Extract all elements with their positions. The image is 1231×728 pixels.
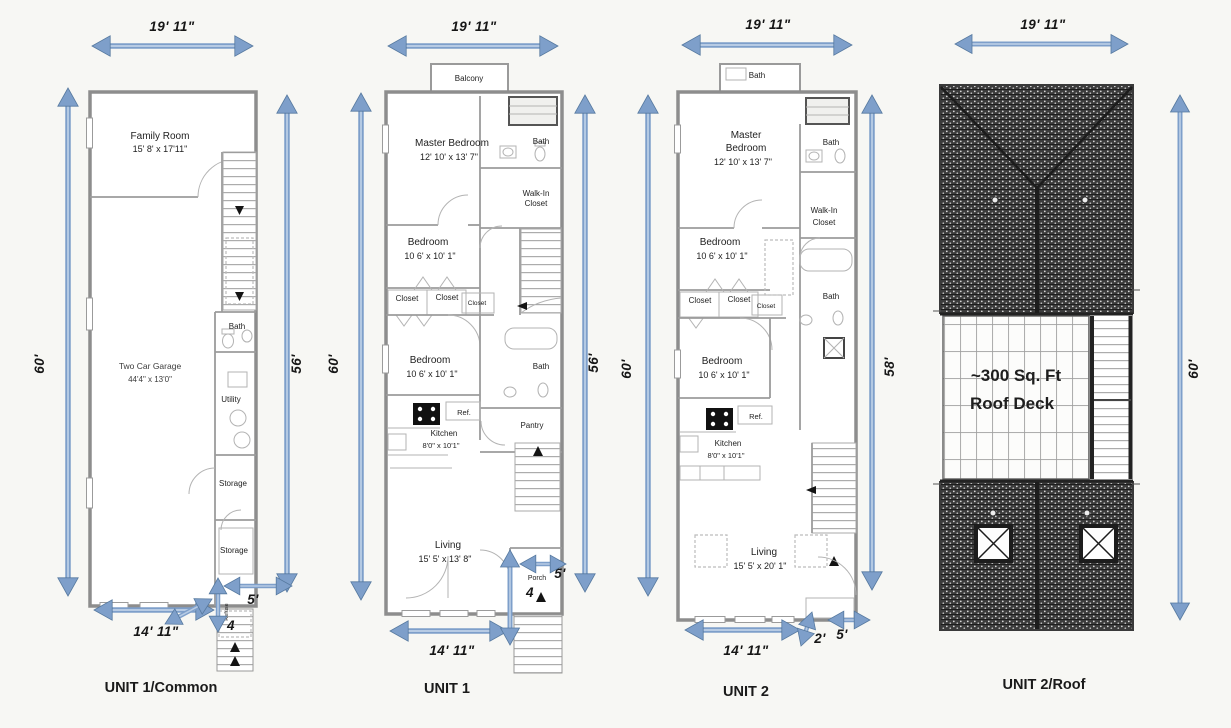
skylight: [1081, 526, 1116, 561]
room-label-bedroom2: Bedroom: [702, 356, 743, 367]
dimension-arrow: [682, 35, 852, 55]
room-label-kitchen: Kitchen: [715, 439, 742, 448]
room-label-bath-mid: Bath: [823, 292, 839, 301]
room-label-ref: Ref.: [749, 412, 763, 421]
dim-bottom-unit1common: 14' 11": [133, 624, 178, 639]
dimension-arrow: [388, 36, 558, 56]
room-label-bath: Bath: [229, 322, 245, 331]
plan-title-unit1: UNIT 1: [424, 681, 470, 697]
room-label-walkin1: Walk-In: [811, 206, 838, 215]
dim-sidewidth-unit2: 5': [836, 627, 848, 642]
floorplan-canvas: Family Room 15' 8' x 17'11" Two Car Gara…: [0, 0, 1231, 728]
room-label-walkin2: Closet: [813, 218, 836, 227]
dim-top-roof: 19' 11": [1020, 17, 1065, 32]
room-label-closet1: Closet: [689, 296, 712, 305]
dimension-arrow: [277, 95, 297, 592]
roofdeck-label-line1: ~300 Sq. Ft: [971, 366, 1062, 385]
room-label-closet2: Closet: [436, 293, 459, 302]
unit1-floorplan: Balcony Master Bedroom 12' 10' x 13' 7" …: [326, 19, 601, 697]
room-label-balcony: Balcony: [455, 74, 483, 83]
dimension-arrow: [92, 36, 253, 56]
room-label-ref: Ref.: [457, 408, 471, 417]
room-label-walkin2: Closet: [525, 199, 548, 208]
room-label-bath-upper: Bath: [823, 138, 839, 147]
dim-porchdepth-unit1: 4: [525, 585, 534, 600]
room-size-living: 15' 5' x 20' 1": [734, 561, 787, 571]
dimension-arrow: [351, 93, 371, 600]
room-size-kitchen: 8'0" x 10'1": [423, 441, 460, 450]
room-size-bedroom1: 10 6' x 10' 1": [696, 251, 747, 261]
room-label-master1: Master: [731, 130, 762, 141]
room-label-master: Master Bedroom: [415, 138, 489, 149]
roofdeck-label-line2: Roof Deck: [970, 394, 1055, 413]
plan-title-unit1common: UNIT 1/Common: [105, 680, 218, 696]
dimension-arrow: [638, 95, 658, 596]
dim-left-unit2: 60': [619, 359, 634, 379]
room-label-utility: Utility: [221, 395, 241, 404]
room-label-closet1: Closet: [396, 294, 419, 303]
dim-sidedepth-unit2: 2': [813, 631, 826, 646]
plan-title-unit2: UNIT 2: [723, 684, 769, 700]
room-label-closet3: Closet: [757, 303, 776, 310]
room-label-porch: Porch: [528, 575, 546, 582]
room-label-family: Family Room: [131, 131, 190, 142]
room-size-garage: 44'4" x 13'0": [128, 375, 172, 384]
dim-right-unit2: 58': [882, 357, 897, 377]
room-size-living: 15' 5' x 13' 8": [419, 554, 472, 564]
unit2-floorplan: Bath Master Bedroom 12' 10' x 13' 7" Bat…: [619, 17, 897, 700]
room-label-storage1: Storage: [219, 479, 248, 488]
dim-stairwidth-unit1common: 5': [247, 592, 259, 607]
room-label-closet2: Closet: [728, 295, 751, 304]
room-label-bath-mid: Bath: [533, 362, 549, 371]
dim-right-unit1common: 56': [289, 354, 304, 374]
room-label-bath-upper: Bath: [533, 137, 549, 146]
room-label-bedroom1: Bedroom: [408, 237, 449, 248]
skylight: [976, 526, 1011, 561]
dimension-arrow: [390, 621, 508, 641]
dim-left-unit1common: 60': [32, 354, 47, 374]
room-label-garage: Two Car Garage: [119, 361, 182, 371]
dimension-arrow: [58, 88, 78, 596]
room-label-kitchen: Kitchen: [431, 429, 458, 438]
room-label-master2: Bedroom: [726, 143, 767, 154]
dim-bottom-unit1: 14' 11": [429, 643, 474, 658]
dim-bottom-unit2: 14' 11": [723, 643, 768, 658]
plan-title-roof: UNIT 2/Roof: [1003, 677, 1086, 693]
floorplan-sheet: Family Room 15' 8' x 17'11" Two Car Gara…: [0, 0, 1231, 728]
room-size-family: 15' 8' x 17'11": [133, 144, 188, 154]
dim-top-unit1: 19' 11": [451, 19, 496, 34]
dimension-arrow: [575, 95, 595, 592]
room-label-bath-top: Bath: [749, 71, 765, 80]
dim-top-unit2: 19' 11": [745, 17, 790, 32]
room-size-kitchen: 8'0" x 10'1": [708, 451, 745, 460]
dim-stairdepth-unit1common: 4: [226, 618, 235, 633]
unit1-common-floorplan: Family Room 15' 8' x 17'11" Two Car Gara…: [32, 19, 304, 696]
dimension-arrow: [862, 95, 882, 590]
room-size-bedroom1: 10 6' x 10' 1": [404, 251, 455, 261]
room-label-storage2: Storage: [220, 546, 249, 555]
room-label-walkin1: Walk-In: [523, 189, 550, 198]
dimension-arrow: [1171, 95, 1190, 620]
room-label-bedroom2: Bedroom: [410, 355, 451, 366]
room-label-pantry: Pantry: [520, 421, 543, 430]
dim-right-unit1: 56': [586, 353, 601, 373]
room-size-master: 12' 10' x 13' 7": [420, 152, 478, 162]
room-size-bedroom2: 10 6' x 10' 1": [698, 370, 749, 380]
room-label-closet3: Closet: [468, 300, 487, 307]
room-label-living: Living: [435, 540, 461, 551]
room-size-bedroom2: 10 6' x 10' 1": [406, 369, 457, 379]
room-size-master: 12' 10' x 13' 7": [714, 157, 772, 167]
dim-top-unit1common: 19' 11": [149, 19, 194, 34]
room-label-living: Living: [751, 547, 777, 558]
dim-right-roof: 60': [1186, 359, 1201, 379]
room-label-bedroom1: Bedroom: [700, 237, 741, 248]
dimension-arrow: [955, 35, 1128, 54]
unit2-roof-plan: ~300 Sq. Ft Roof Deck 19' 11" 60' UNIT 2…: [933, 17, 1201, 693]
dim-left-unit1: 60': [326, 354, 341, 374]
